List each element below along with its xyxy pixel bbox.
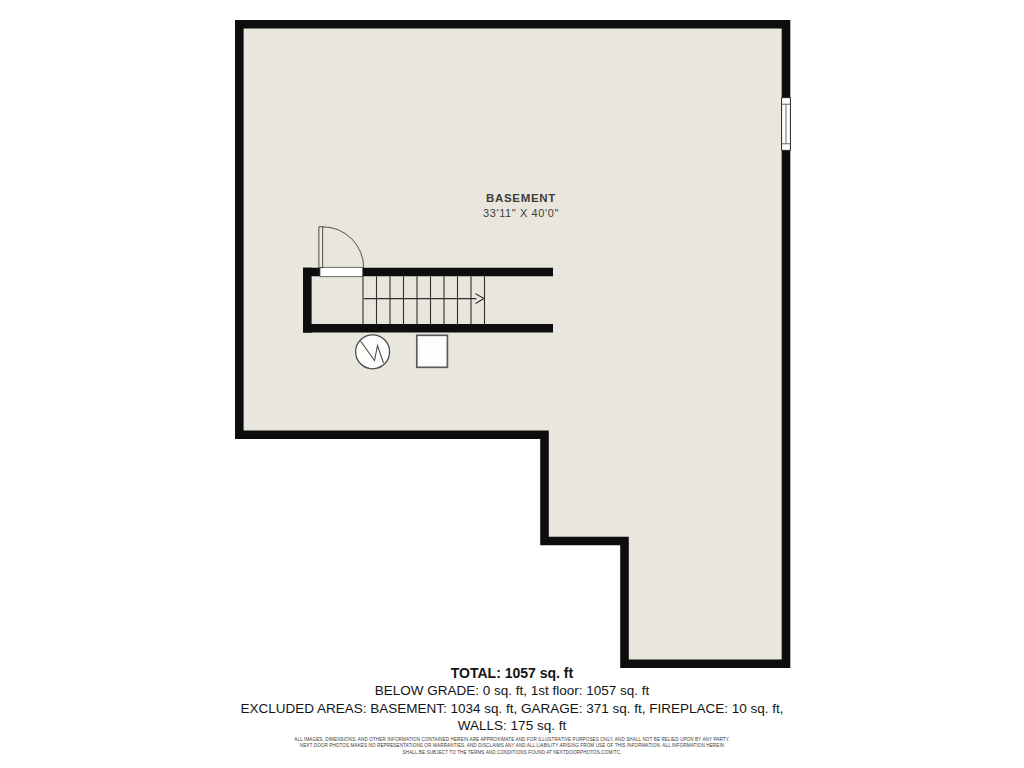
room-dimensions: 33'11" X 40'0" <box>421 207 621 219</box>
area-summary: TOTAL: 1057 sq. ft BELOW GRADE: 0 sq. ft… <box>0 665 1024 735</box>
below-grade-line: BELOW GRADE: 0 sq. ft, 1st floor: 1057 s… <box>0 682 1024 699</box>
floorplan-drawing <box>0 0 1024 768</box>
disclaimer: ALL IMAGES, DIMENSIONS, AND OTHER INFORM… <box>0 737 1024 756</box>
excluded-areas-line: EXCLUDED AREAS: BASEMENT: 1034 sq. ft, G… <box>0 700 1024 717</box>
exterior-walls <box>239 24 786 664</box>
disclaimer-line-3: SHALL BE SUBJECT TO THE TERMS AND CONDIT… <box>0 750 1024 756</box>
room-label: BASEMENT 33'11" X 40'0" <box>421 192 621 219</box>
furnace-symbol <box>417 335 448 367</box>
floorplan-page: BASEMENT 33'11" X 40'0" TOTAL: 1057 sq. … <box>0 0 1024 768</box>
window-symbol <box>782 98 791 151</box>
door-leaf-icon <box>319 227 323 268</box>
walls-area-line: WALLS: 175 sq. ft <box>0 717 1024 734</box>
total-area-line: TOTAL: 1057 sq. ft <box>0 665 1024 682</box>
water-heater-symbol <box>356 335 390 369</box>
room-name: BASEMENT <box>421 192 621 204</box>
doorway-opening <box>320 267 363 276</box>
